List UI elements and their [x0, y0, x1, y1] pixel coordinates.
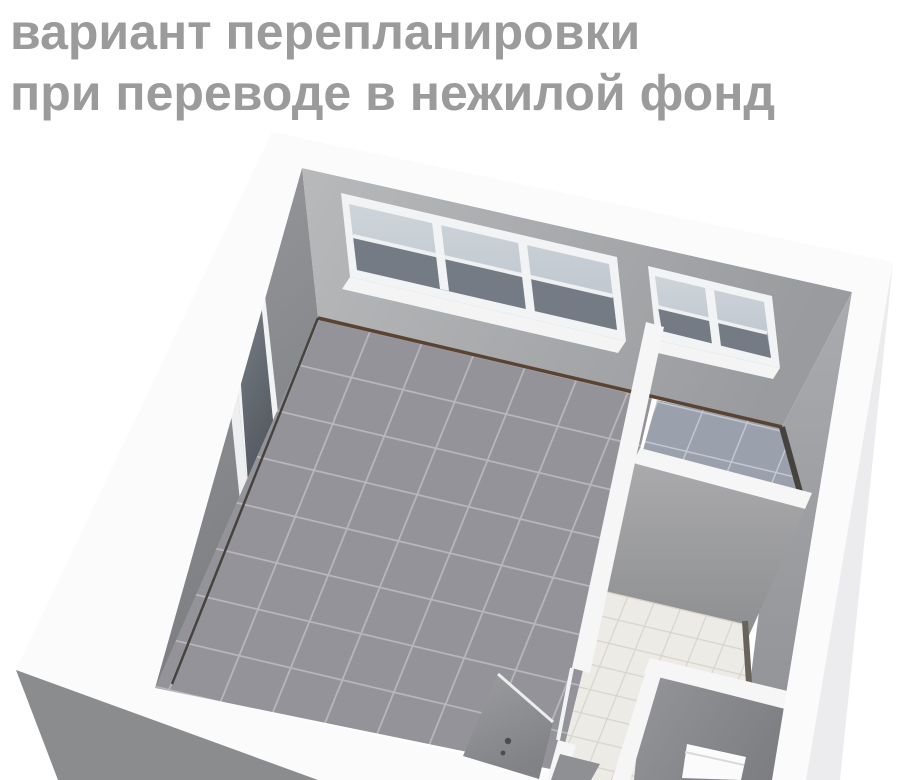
title-line-2: при переводе в нежилой фонд	[10, 63, 775, 124]
page-title: вариант перепланировки при переводе в не…	[10, 2, 775, 124]
screenshot-root: вариант перепланировки при переводе в не…	[0, 0, 901, 780]
door-handle	[505, 738, 511, 744]
door-handle	[501, 751, 506, 756]
title-line-1: вариант перепланировки	[10, 2, 775, 63]
